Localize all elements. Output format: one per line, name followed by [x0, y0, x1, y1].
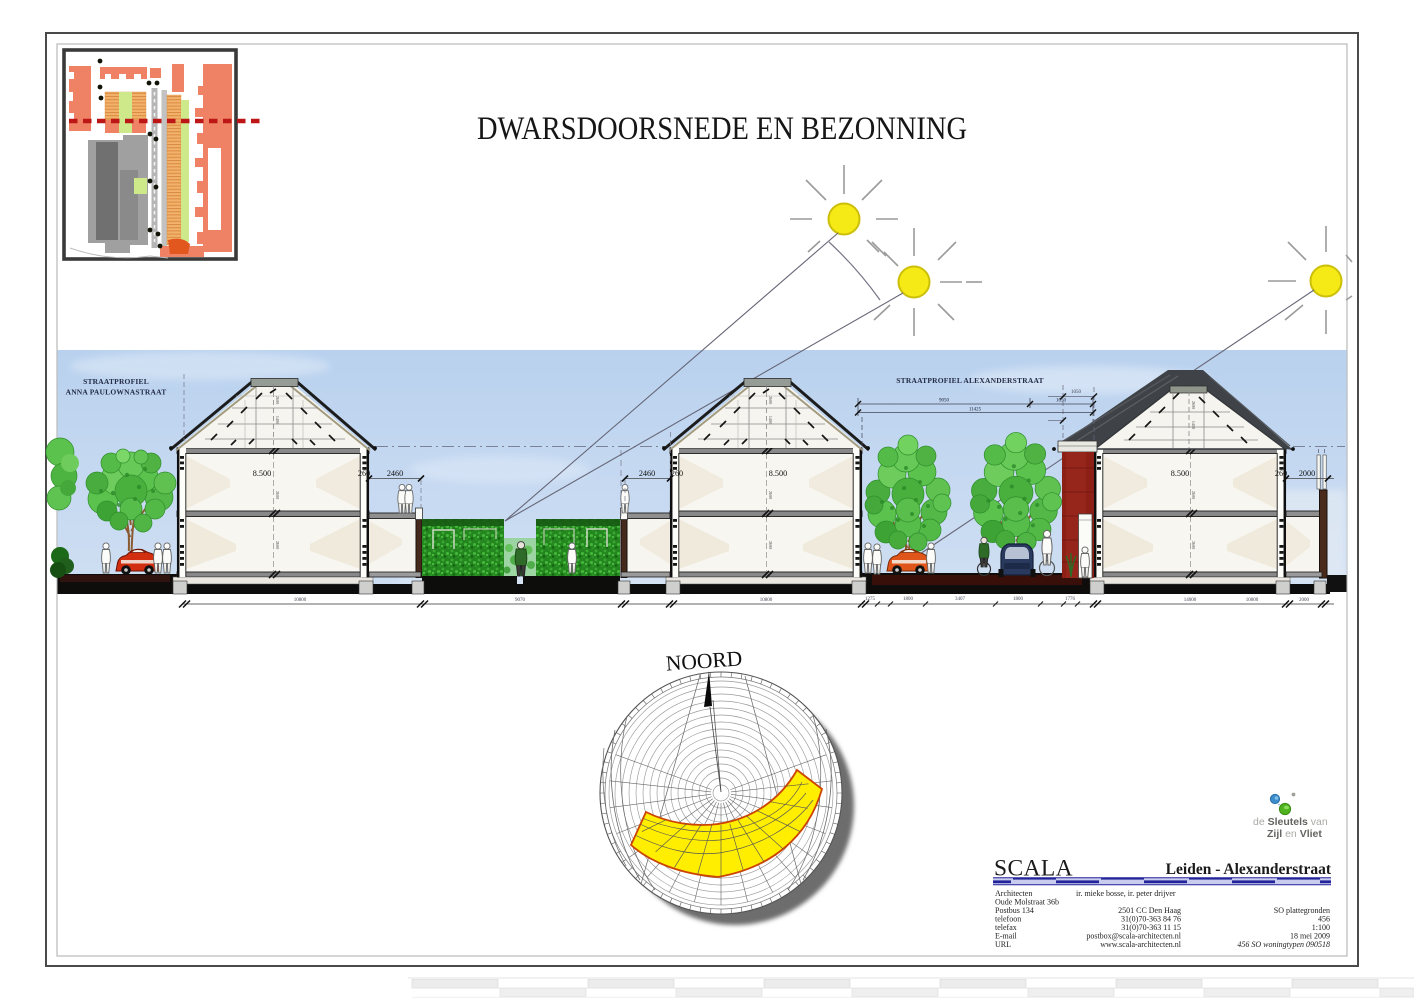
svg-text:1776: 1776 — [1065, 597, 1076, 602]
svg-text:Leiden - Alexanderstraat: Leiden - Alexanderstraat — [1166, 861, 1332, 878]
svg-text:2600: 2600 — [275, 396, 280, 404]
svg-text:9050: 9050 — [939, 399, 950, 404]
svg-text:2600: 2600 — [275, 541, 280, 549]
svg-text:2600: 2600 — [1191, 491, 1196, 499]
svg-text:2000: 2000 — [1299, 598, 1310, 603]
svg-text:2600: 2600 — [768, 491, 773, 499]
svg-text:STRAATPROFIEL ALEXANDERSTRAAT: STRAATPROFIEL ALEXANDERSTRAAT — [896, 376, 1043, 385]
svg-text:2600: 2600 — [768, 396, 773, 404]
svg-text:10800: 10800 — [760, 598, 773, 603]
svg-text:10000: 10000 — [1246, 598, 1259, 603]
svg-text:Zijl en Vliet: Zijl en Vliet — [1267, 828, 1322, 840]
svg-text:2460: 2460 — [387, 469, 403, 478]
svg-text:8.500: 8.500 — [253, 469, 271, 478]
svg-text:14000: 14000 — [1184, 598, 1197, 603]
svg-text:NOORD: NOORD — [665, 646, 743, 675]
svg-text:1400: 1400 — [1191, 421, 1196, 429]
svg-text:260: 260 — [358, 469, 370, 478]
svg-text:2000: 2000 — [1299, 469, 1315, 478]
svg-text:1800: 1800 — [903, 597, 914, 602]
svg-text:9070: 9070 — [515, 598, 526, 603]
svg-text:8.500: 8.500 — [1171, 469, 1189, 478]
svg-text:2600: 2600 — [768, 541, 773, 549]
svg-text:11425: 11425 — [969, 408, 982, 413]
svg-text:1400: 1400 — [275, 416, 280, 424]
svg-text:2600: 2600 — [1191, 541, 1196, 549]
svg-text:DWARSDOORSNEDE EN BEZONNING: DWARSDOORSNEDE EN BEZONNING — [477, 111, 967, 147]
svg-text:1275: 1275 — [865, 597, 876, 602]
svg-text:1800: 1800 — [1013, 597, 1024, 602]
svg-text:260: 260 — [1275, 469, 1287, 478]
svg-text:ANNA PAULOWNASTRAAT: ANNA PAULOWNASTRAAT — [66, 388, 167, 397]
svg-text:2460: 2460 — [639, 469, 655, 478]
svg-text:URL: URL — [995, 940, 1011, 949]
svg-text:ir. mieke bosse, ir. peter dri: ir. mieke bosse, ir. peter drijver — [1076, 889, 1176, 898]
svg-text:10800: 10800 — [294, 598, 307, 603]
svg-text:STRAATPROFIEL: STRAATPROFIEL — [83, 377, 149, 386]
svg-text:456 SO woningtypen 090518: 456 SO woningtypen 090518 — [1237, 940, 1330, 949]
svg-text:1050: 1050 — [1056, 399, 1067, 404]
svg-text:2600: 2600 — [1191, 401, 1196, 409]
svg-text:3407: 3407 — [955, 597, 966, 602]
svg-text:de Sleutels van: de Sleutels van — [1253, 816, 1328, 828]
svg-text:8.500: 8.500 — [769, 469, 787, 478]
svg-text:2600: 2600 — [275, 491, 280, 499]
svg-text:1050: 1050 — [1071, 390, 1082, 395]
svg-text:www.scala-architecten.nl: www.scala-architecten.nl — [1100, 940, 1182, 949]
svg-text:1400: 1400 — [768, 416, 773, 424]
